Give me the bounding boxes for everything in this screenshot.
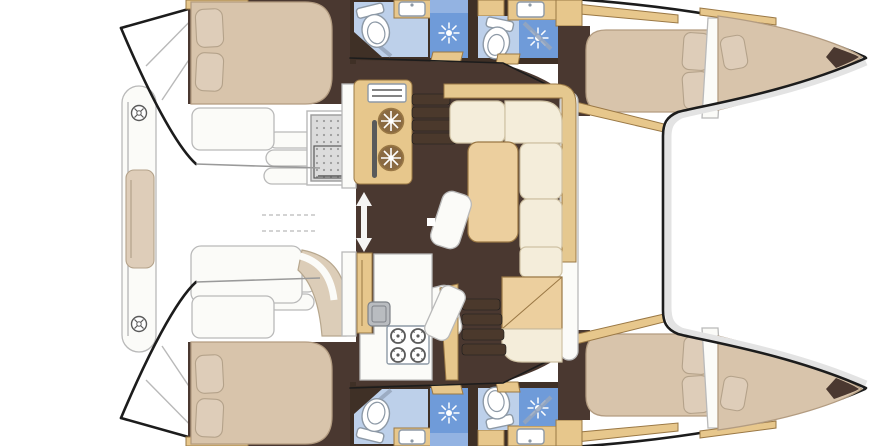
sofa-cushion	[520, 199, 562, 253]
sofa-cushion	[450, 101, 505, 143]
sofa-cushion	[505, 101, 562, 143]
beam-cushion-pad	[126, 170, 154, 268]
winch-icon	[132, 317, 147, 332]
inner-bow-outline	[663, 58, 866, 388]
saloon-aft-wall	[342, 252, 356, 336]
saloon-table	[468, 142, 518, 242]
galley-counter	[354, 80, 412, 184]
sofa-cushion	[520, 247, 562, 277]
aft-crossbeam-platform	[122, 86, 156, 352]
cockpit-table-pad	[191, 246, 302, 303]
sofa-cushion	[520, 143, 562, 199]
galley-sink-icon	[379, 109, 404, 134]
catamaran-floor-plan	[0, 0, 890, 446]
foredeck	[663, 58, 866, 388]
winch-icon	[132, 106, 147, 121]
forward-cabin	[556, 0, 724, 118]
cockpit-curved-bench	[298, 250, 346, 336]
galley-sink-icon	[379, 146, 404, 171]
sofa-corner-unit	[502, 329, 562, 362]
floor-plan-canvas	[0, 0, 890, 446]
table-leg	[427, 218, 435, 226]
oven	[368, 84, 406, 102]
bedside-shelf	[192, 108, 274, 150]
bathrooms	[350, 0, 562, 64]
saloon	[342, 58, 578, 388]
shower-icon	[439, 23, 460, 44]
cabinet	[556, 0, 582, 26]
fiddle-rail	[372, 120, 377, 178]
pillow	[719, 34, 748, 71]
